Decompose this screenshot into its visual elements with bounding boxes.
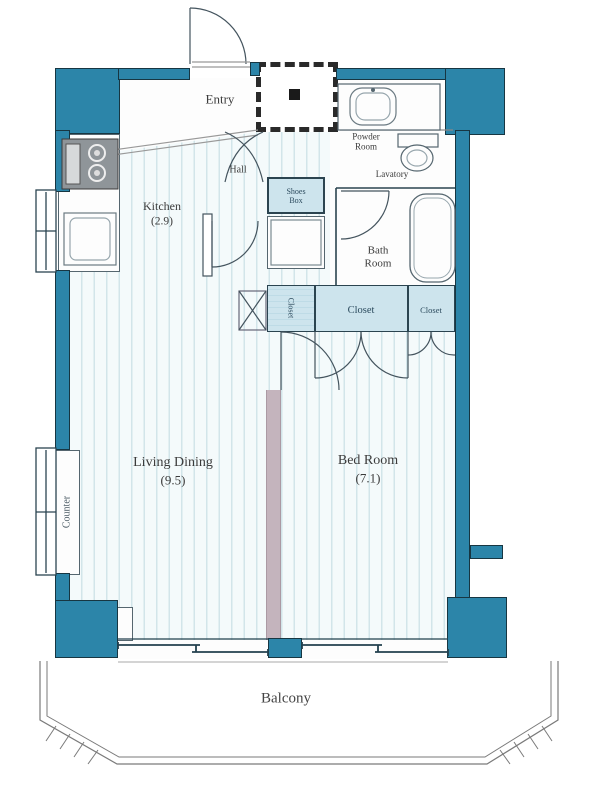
counter-window xyxy=(36,448,56,575)
hall-label: Hall xyxy=(229,164,246,176)
bifold-door-icon xyxy=(239,291,266,330)
entry-door-arc xyxy=(190,8,246,64)
bedroom-door-arc xyxy=(281,332,339,390)
bath-room-label: Bath Room xyxy=(354,244,402,269)
closet-mid-label: Closet xyxy=(348,305,375,317)
kitchen-label: Kitchen xyxy=(143,200,181,214)
kitchen-window xyxy=(36,190,56,272)
floorplan-linework xyxy=(0,0,600,800)
entry-label: Entry xyxy=(206,93,235,108)
closet-right-label: Closet xyxy=(420,306,442,316)
bed-room-label: Bed Room xyxy=(338,453,398,469)
stove-icon xyxy=(62,139,118,189)
floor-plan: Entry Hall Kitchen (2.9) Powder Room Lav… xyxy=(0,0,600,800)
living-dining-label: Living Dining xyxy=(133,455,213,471)
hall-wall-stub xyxy=(203,214,212,276)
kitchen-sink-icon xyxy=(64,213,116,265)
closet-right-door-arc-right xyxy=(431,332,455,355)
toilet-icon xyxy=(398,134,438,171)
balcony-label: Balcony xyxy=(261,690,311,707)
powder-room-label: Powder Room xyxy=(341,132,391,153)
bath-door-arc xyxy=(341,191,389,239)
counter-label: Counter xyxy=(61,496,73,528)
bathtub-icon xyxy=(410,194,455,282)
closet-mid-door-arc-right xyxy=(361,332,408,378)
washer-inner xyxy=(271,220,321,265)
closet-right-door-arc-left xyxy=(408,332,431,355)
entry-step-line xyxy=(113,130,258,150)
lavatory-label: Lavatory xyxy=(376,169,408,179)
closet-small-label: Closet xyxy=(286,298,295,318)
shoes-box-label: Shoes Box xyxy=(279,187,313,205)
living-dining-size-label: (9.5) xyxy=(161,474,186,489)
closet-mid-door-arc-left xyxy=(315,332,361,378)
washbasin-icon xyxy=(338,84,440,130)
kitchen-size-label: (2.9) xyxy=(151,215,173,228)
balcony-hatch-left xyxy=(46,726,98,764)
bedroom-window xyxy=(302,639,448,656)
bed-room-size-label: (7.1) xyxy=(356,472,381,487)
living-door-arc xyxy=(212,221,258,267)
living-window xyxy=(118,639,268,656)
balcony-outline xyxy=(40,661,558,764)
